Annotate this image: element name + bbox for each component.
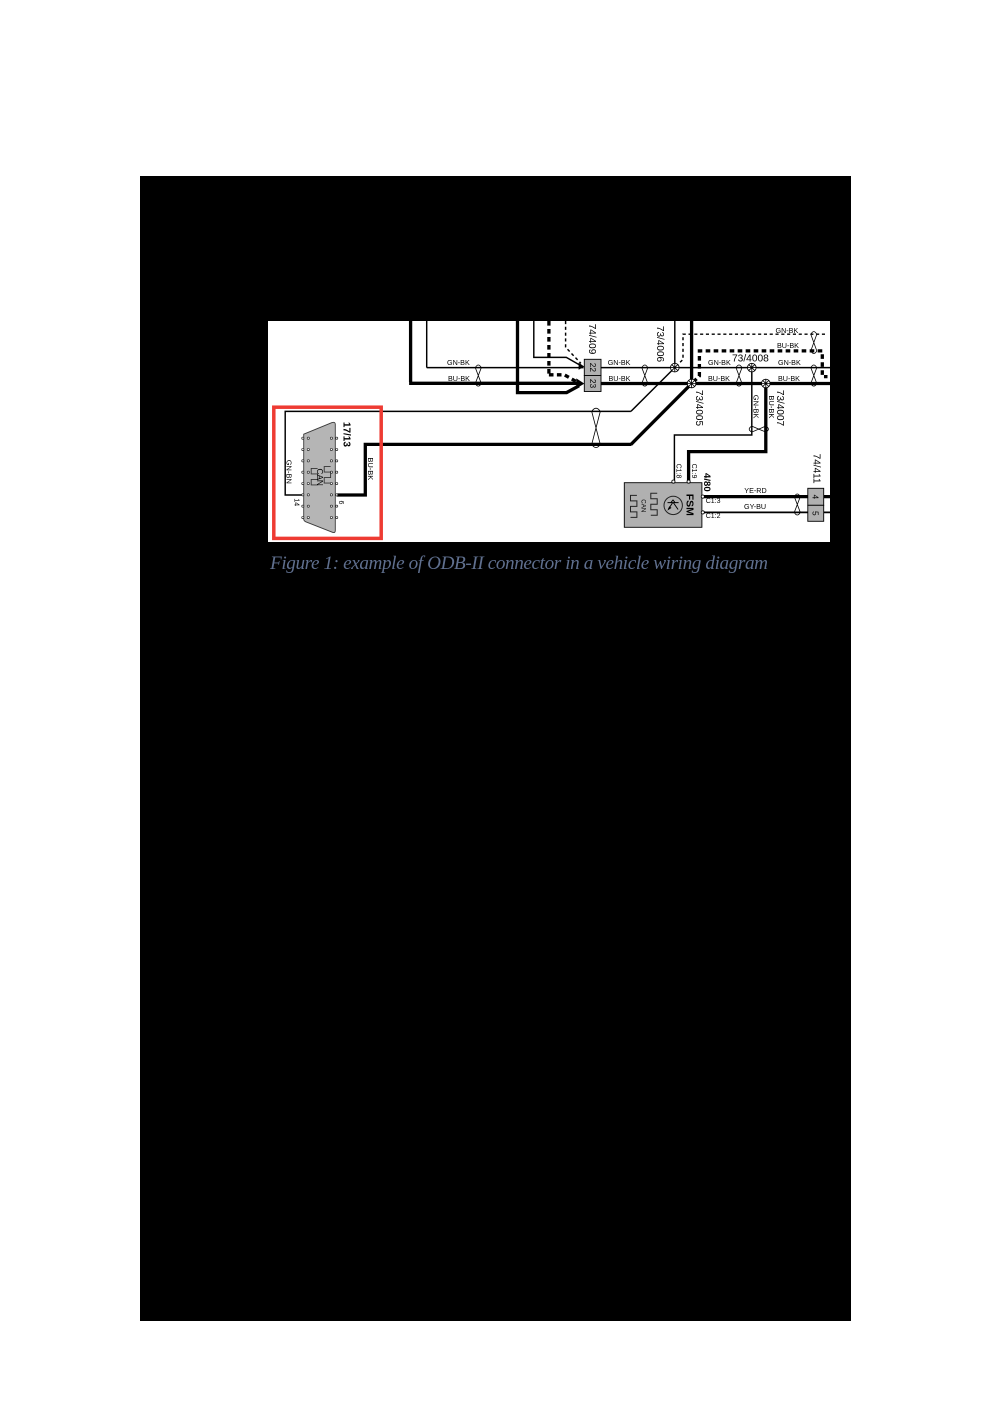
svg-text:C1:8: C1:8 (675, 464, 682, 479)
svg-text:17/13: 17/13 (341, 422, 352, 447)
svg-text:73/4008: 73/4008 (732, 353, 769, 364)
svg-text:73/4005: 73/4005 (693, 390, 704, 427)
svg-text:4/80: 4/80 (701, 473, 712, 492)
svg-text:C1:2: C1:2 (706, 513, 721, 520)
svg-text:4: 4 (811, 494, 821, 499)
svg-text:GN-BK: GN-BK (708, 358, 731, 367)
svg-text:FSM: FSM (684, 494, 696, 516)
svg-text:BU-BK: BU-BK (708, 374, 730, 383)
svg-text:GY-BU: GY-BU (744, 502, 766, 511)
svg-text:BU-BK: BU-BK (778, 374, 800, 383)
svg-text:74/409: 74/409 (586, 324, 597, 355)
svg-text:6: 6 (337, 500, 344, 504)
svg-text:73/4006: 73/4006 (654, 326, 665, 363)
svg-text:5: 5 (811, 511, 821, 516)
svg-text:GN-BK: GN-BK (608, 358, 631, 367)
svg-text:GN-BK: GN-BK (778, 358, 801, 367)
svg-text:BU-BK: BU-BK (767, 395, 776, 418)
svg-text:C1:9: C1:9 (690, 464, 697, 479)
svg-text:CAN: CAN (315, 469, 324, 486)
svg-text:14: 14 (293, 498, 300, 506)
svg-text:YE-RD: YE-RD (744, 486, 766, 495)
svg-text:C1:3: C1:3 (706, 498, 721, 505)
svg-text:GN-BK: GN-BK (752, 395, 761, 419)
svg-text:BU-BK: BU-BK (777, 341, 799, 350)
svg-text:GN-BN: GN-BN (284, 460, 293, 484)
svg-text:BU-BK: BU-BK (448, 374, 470, 383)
svg-text:23: 23 (588, 379, 598, 389)
svg-text:CAN: CAN (639, 499, 646, 512)
svg-text:22: 22 (588, 363, 598, 373)
svg-text:BU-BK: BU-BK (366, 457, 375, 480)
svg-text:GN-BK: GN-BK (447, 358, 470, 367)
svg-text:GN-BK: GN-BK (776, 326, 799, 335)
svg-text:74/411: 74/411 (810, 454, 821, 484)
svg-text:BU-BK: BU-BK (609, 374, 631, 383)
